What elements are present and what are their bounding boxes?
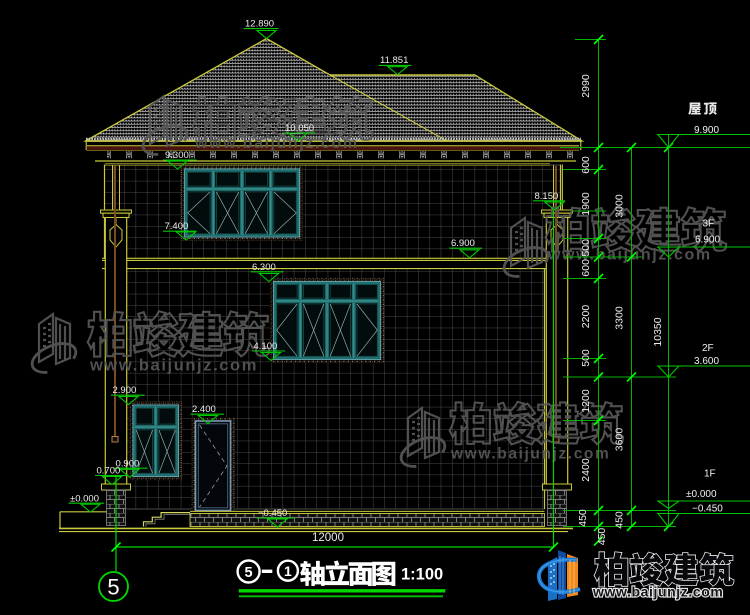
svg-text:1F: 1F [704, 469, 716, 480]
svg-text:3300: 3300 [614, 306, 626, 330]
svg-text:6.300: 6.300 [252, 262, 276, 273]
svg-text:±0.000: ±0.000 [70, 493, 99, 504]
svg-text:1900: 1900 [580, 192, 592, 216]
svg-text:1:100: 1:100 [401, 566, 443, 584]
svg-text:2F: 2F [702, 343, 714, 354]
svg-text:450: 450 [614, 511, 626, 529]
svg-text:6.900: 6.900 [451, 238, 475, 249]
svg-text:www.baijunjz.com: www.baijunjz.com [194, 135, 359, 152]
svg-text:5: 5 [107, 575, 119, 600]
svg-text:−0.450: −0.450 [692, 504, 723, 515]
svg-text:12000: 12000 [312, 532, 344, 544]
svg-text:3000: 3000 [614, 194, 626, 218]
svg-text:±0.000: ±0.000 [686, 489, 717, 500]
svg-text:4.100: 4.100 [254, 341, 278, 352]
svg-text:7.400: 7.400 [165, 221, 189, 232]
svg-text:500: 500 [580, 239, 592, 257]
svg-text:1: 1 [284, 563, 292, 579]
svg-text:www.baijunjz.com: www.baijunjz.com [547, 247, 712, 264]
svg-text:2.900: 2.900 [113, 385, 137, 396]
svg-text:5: 5 [245, 565, 253, 581]
svg-text:2.400: 2.400 [192, 404, 216, 415]
svg-text:500: 500 [580, 349, 592, 367]
svg-text:3.600: 3.600 [694, 356, 719, 367]
svg-text:600: 600 [580, 259, 592, 277]
svg-text:3F: 3F [703, 219, 715, 230]
svg-text:1200: 1200 [580, 389, 592, 413]
svg-text:12.890: 12.890 [245, 19, 274, 30]
svg-text:600: 600 [580, 156, 592, 174]
svg-text:10.050: 10.050 [285, 123, 314, 134]
svg-text:2990: 2990 [580, 74, 592, 98]
svg-text:2200: 2200 [580, 305, 592, 329]
svg-text:www.baijunjz.com: www.baijunjz.com [89, 357, 258, 375]
svg-text:www.baijunjz.com: www.baijunjz.com [592, 584, 723, 600]
svg-text:8.150: 8.150 [535, 191, 559, 202]
svg-text:11.851: 11.851 [380, 55, 408, 66]
svg-text:3600: 3600 [614, 428, 626, 452]
svg-text:450: 450 [577, 509, 589, 527]
svg-text:450: 450 [596, 528, 608, 546]
svg-text:9.300: 9.300 [165, 150, 189, 161]
svg-text:2400: 2400 [580, 458, 592, 482]
svg-text:6.900: 6.900 [695, 235, 720, 246]
svg-text:10350: 10350 [652, 317, 664, 346]
